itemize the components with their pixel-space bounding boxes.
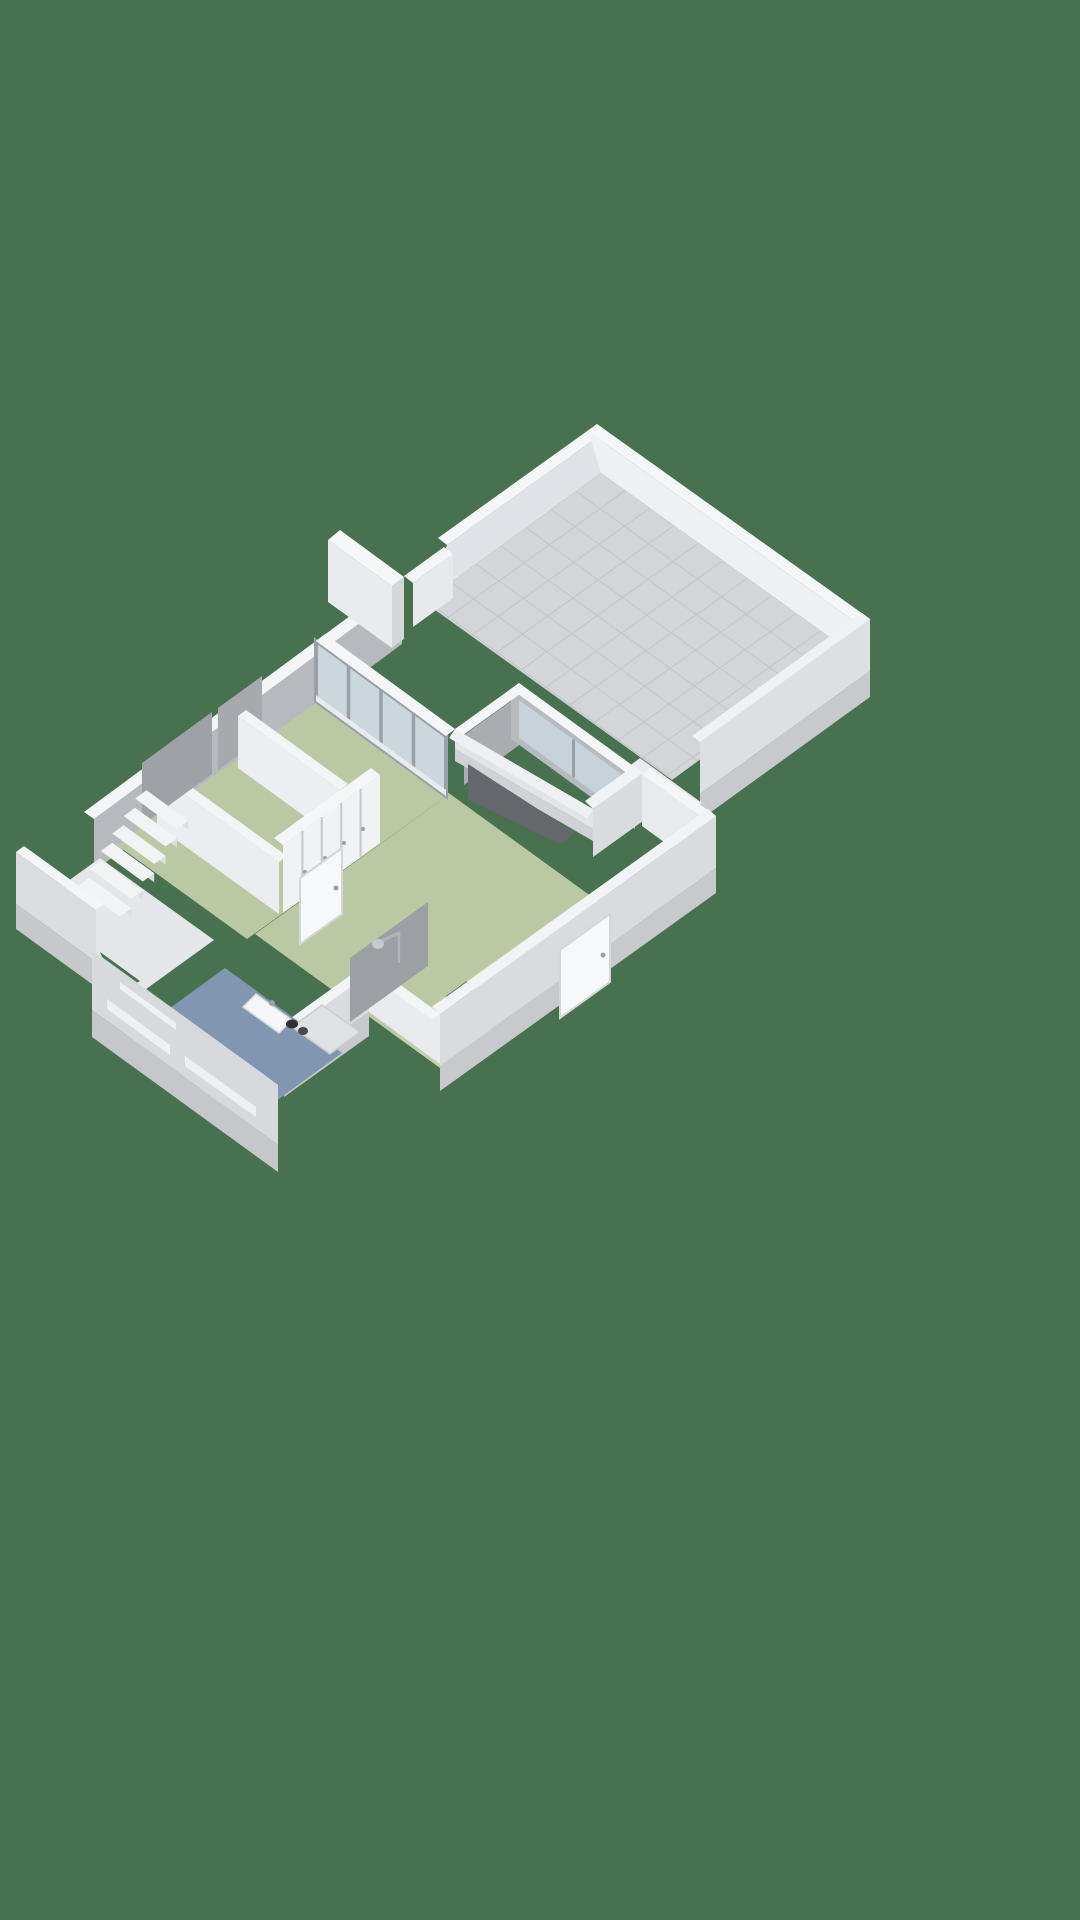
floorplan-3d-render <box>0 0 1080 1920</box>
sink-faucet <box>269 1000 275 1006</box>
hall-door-handle-shape <box>601 953 606 958</box>
closet-handle-4-shape <box>361 827 365 831</box>
shower-head <box>372 939 384 949</box>
closet-handle-3-shape <box>342 841 346 845</box>
wing-door-handle-shape <box>334 886 339 891</box>
sink-faucet-shape <box>269 1000 275 1006</box>
chimney-se-face <box>392 577 404 648</box>
closet-handle-4 <box>361 827 365 831</box>
floor-accent-dark-2-shape <box>298 1027 308 1035</box>
wing-door-handle <box>334 886 339 891</box>
closet-handle-3 <box>342 841 346 845</box>
floor-accent-dark-1-shape <box>286 1020 298 1029</box>
shower-head-shape <box>372 939 384 949</box>
chimney-se-face-shape <box>392 577 404 648</box>
floor-accent-dark-2 <box>298 1027 308 1035</box>
floor-accent-dark-1 <box>286 1020 298 1029</box>
floorplan-svg <box>0 0 1080 1920</box>
hall-door-handle <box>601 953 606 958</box>
